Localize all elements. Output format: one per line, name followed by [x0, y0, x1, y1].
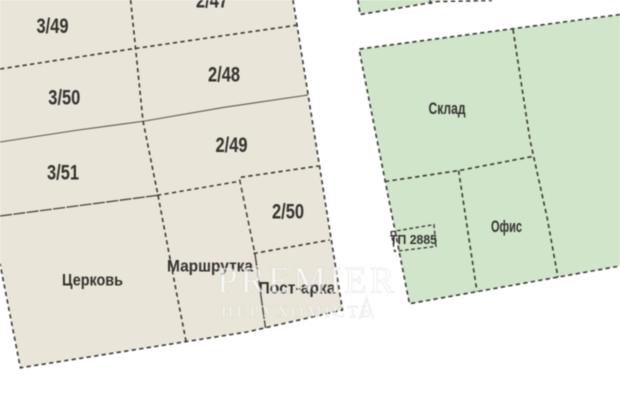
svg-text:2/48: 2/48	[208, 63, 240, 86]
svg-text:PREMIER: PREMIER	[217, 261, 397, 302]
svg-text:3/49: 3/49	[37, 15, 69, 38]
svg-text:2/49: 2/49	[216, 134, 248, 157]
svg-text:ТП 2885: ТП 2885	[390, 232, 437, 247]
svg-text:2/50: 2/50	[272, 201, 304, 224]
svg-text:3/50: 3/50	[48, 86, 80, 109]
svg-text:Склад: Склад	[429, 100, 466, 118]
svg-text:2/47: 2/47	[196, 0, 228, 12]
svg-text:Церковь: Церковь	[62, 272, 123, 290]
svg-text:Офис: Офис	[491, 218, 522, 236]
svg-text:НЕРУХОМІСТЬ: НЕРУХОМІСТЬ	[221, 302, 374, 321]
svg-text:3/51: 3/51	[47, 162, 79, 185]
